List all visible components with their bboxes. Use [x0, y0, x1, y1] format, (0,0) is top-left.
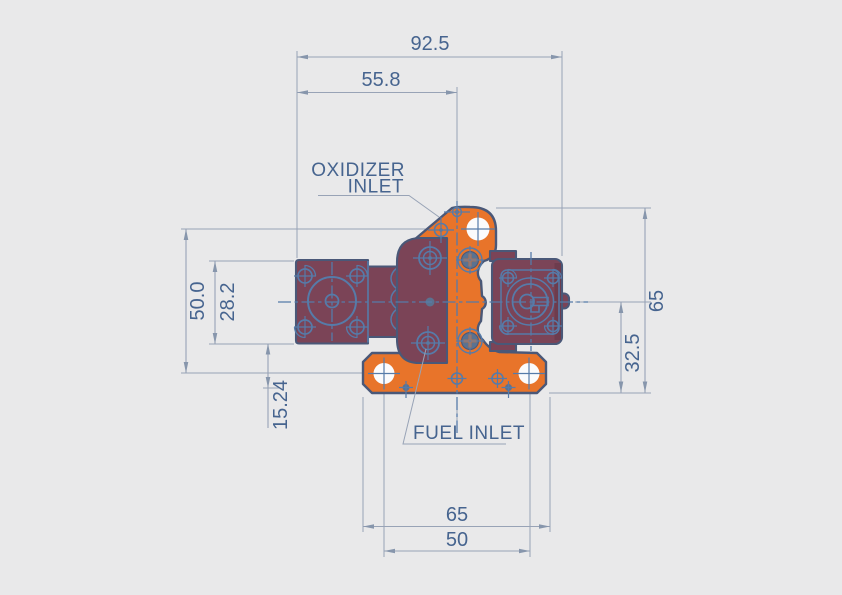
- dim-text-32-5: 32.5: [622, 334, 644, 373]
- dim-text-bottom-65: 65: [446, 504, 468, 526]
- dim-text-55-8: 55.8: [362, 69, 401, 91]
- cad-drawing-canvas: 92.5 55.8 50.0 28.2 15.24 65 32.5 65 50 …: [0, 0, 842, 595]
- dim-text-28-2: 28.2: [217, 283, 239, 322]
- dim-text-right-65: 65: [646, 290, 668, 312]
- dim-text-50-0: 50.0: [187, 282, 209, 321]
- right-actuator-body: [490, 251, 569, 351]
- center-manifold-body: [397, 238, 447, 363]
- oxidizer-leader-line: [318, 196, 439, 218]
- fuel-inlet-label: FUEL INLET: [413, 423, 525, 444]
- dim-text-15-24: 15.24: [270, 380, 292, 430]
- oxidizer-inlet-label-line2: INLET: [348, 177, 404, 198]
- valve-assembly-drawing: 92.5 55.8 50.0 28.2 15.24 65 32.5 65 50 …: [0, 0, 842, 595]
- dim-text-bottom-50: 50: [446, 529, 468, 551]
- dim-text-92-5: 92.5: [411, 33, 450, 55]
